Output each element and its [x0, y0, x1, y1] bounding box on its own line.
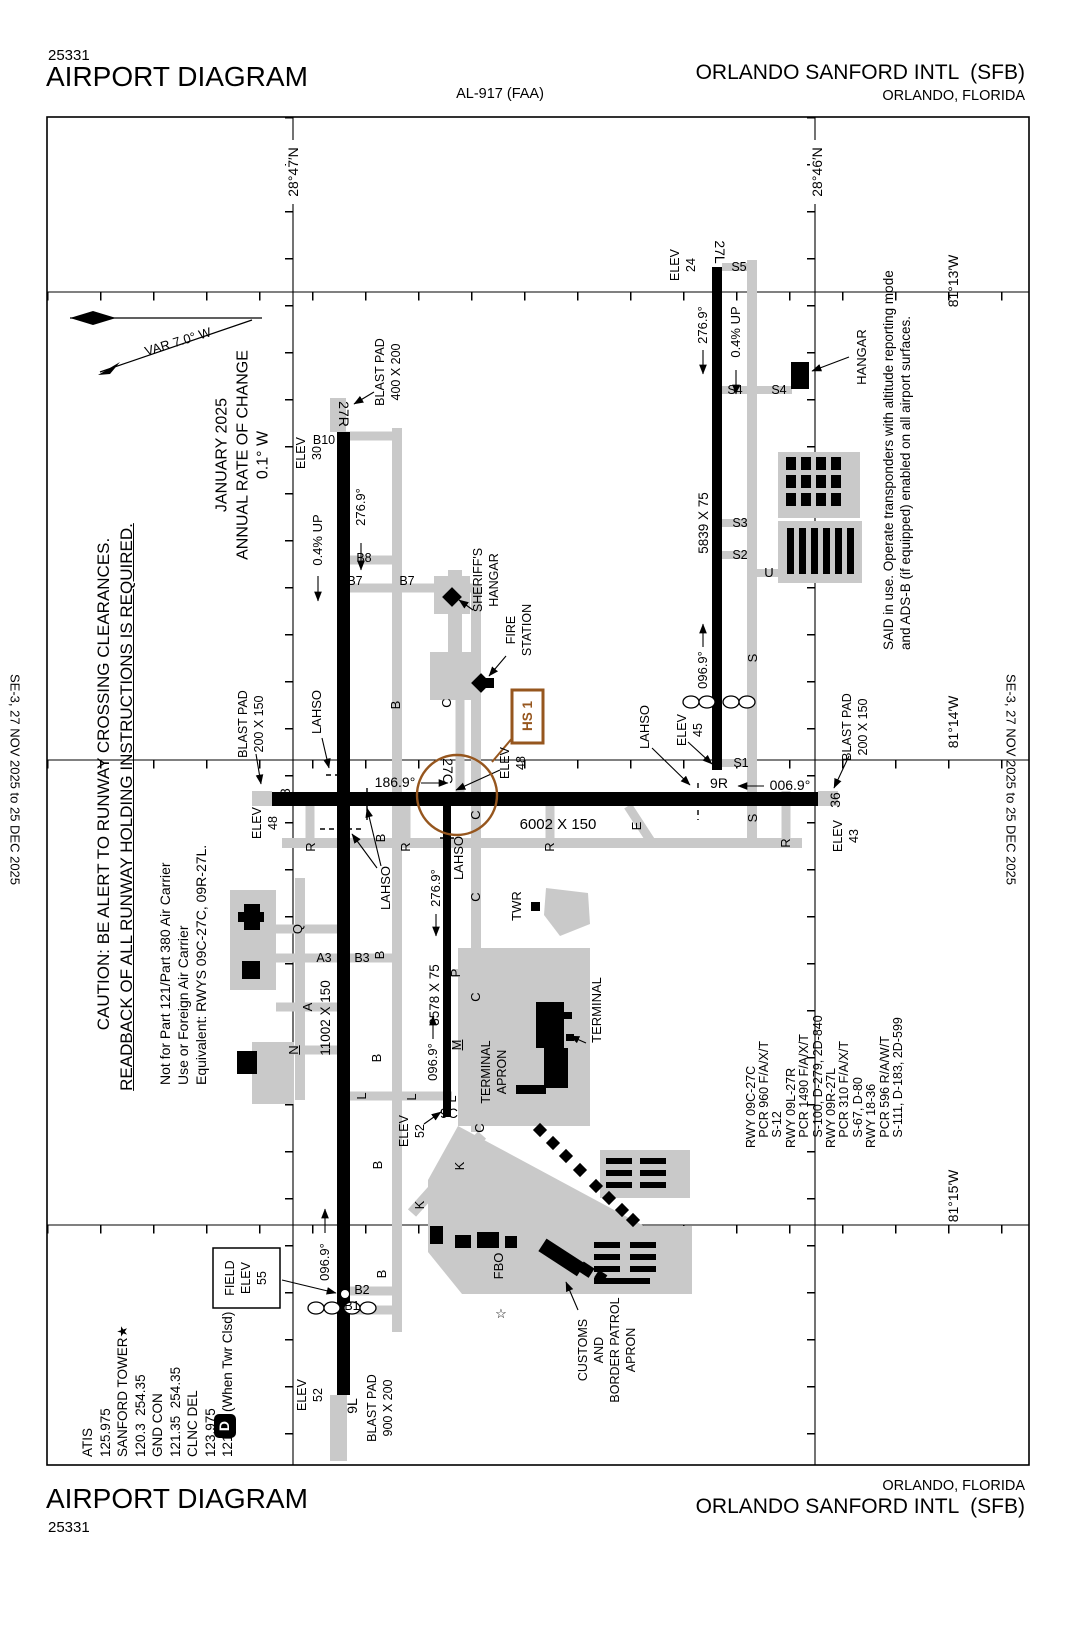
taxiway-c-label-1: C: [439, 695, 455, 711]
dimensions-9r-27l: 5839 X 75: [696, 485, 712, 561]
taxiway-l-label-3: L: [444, 1091, 460, 1107]
tower-building: [531, 902, 540, 911]
taxiway-s4-label-1: S4: [723, 382, 747, 398]
lahso-label-1: LAHSO: [309, 687, 325, 737]
blast-pad-18-label: BLAST PAD 200 X 150: [236, 686, 266, 762]
taxiway-b-label-6: B: [374, 1266, 390, 1282]
runway-end-9c: 9C: [437, 1106, 461, 1122]
runway-data-block: RWY 09C-27C PCR 960 F/A/X/T S-12 RWY 09L…: [744, 988, 906, 1148]
dimensions-18-36: 6002 X 150: [516, 817, 600, 833]
dimensions-9l-27r: 11002 X 150: [318, 972, 334, 1064]
runway-end-27l: 27L: [711, 236, 727, 268]
hdg-9l: 096.9°: [317, 1238, 333, 1286]
runway-end-27c: 27C: [439, 755, 455, 787]
taxiway-b8-label: B8: [350, 550, 378, 566]
terminal-label: TERMINAL: [589, 974, 605, 1046]
taxiway-r-label-3: R: [542, 839, 558, 855]
taxiway-e-label: E: [629, 818, 645, 834]
elev-27l: ELEV 24: [668, 245, 698, 285]
elev-27c: ELEV 48: [498, 743, 528, 783]
runway-end-9r: 9R: [707, 776, 731, 792]
taxiway-r-label-4: R: [778, 835, 794, 851]
runway-end-9l: 9L: [345, 1394, 361, 1418]
page-title-top: AIRPORT DIAGRAM: [46, 62, 406, 92]
runway-18-36: [272, 792, 818, 806]
taxiway-c-label-3: C: [468, 889, 484, 905]
city-bottom: ORLANDO, FLORIDA: [600, 1478, 1025, 1494]
effective-dates-right: SE-3, 27 NOV 2025 to 25 DEC 2025: [1000, 600, 1020, 960]
taxiway-b7-label-1: B7: [341, 573, 369, 589]
longitude-label-81-15: 81°15′W: [946, 1164, 962, 1228]
taxiway-c-label-2: C: [468, 807, 484, 823]
airport-diagram-page: 25331 AIRPORT DIAGRAM AL-917 (FAA) ORLAN…: [0, 0, 1076, 1650]
hot-spot-hs1-label: HS 1: [520, 697, 536, 735]
taxiway-a-label: A: [300, 999, 316, 1015]
taxiway-b-label-2: B: [373, 830, 389, 846]
taxiway-b-label-4: B: [369, 1050, 385, 1066]
airport-name-bottom: ORLANDO SANFORD INTL (SFB): [600, 1496, 1025, 1518]
hangar-building: [791, 362, 809, 389]
fire-station-label: FIRE STATION: [504, 600, 534, 660]
sheriffs-hangar-label: SHERIFF'S HANGAR: [471, 544, 501, 616]
taxiway-b-label-1: B: [388, 697, 404, 713]
elev-9c: ELEV 52: [397, 1111, 427, 1151]
caution-note-line2: READBACK OF ALL RUNWAY HOLDING INSTRUCTI…: [115, 512, 139, 1102]
comm-frequencies-block: ATIS 125.975 SANFORD TOWER★ 120.3 254.35…: [78, 1285, 238, 1457]
fbo-label: FBO: [491, 1250, 507, 1282]
runway-9r-27l: [712, 267, 722, 770]
hdg-9r: 096.9°: [695, 646, 711, 694]
lahso-label-2: LAHSO: [378, 863, 394, 913]
airport-name-top: ORLANDO SANFORD INTL (SFB): [600, 62, 1025, 84]
hangar-label: HANGAR: [854, 326, 870, 388]
elev-36: ELEV 43: [831, 816, 861, 856]
taxiway-s3-label: S3: [728, 515, 752, 531]
lahso-label-3: LAHSO: [451, 833, 467, 883]
effective-dates-left: SE-3, 27 NOV 2025 to 25 DEC 2025: [4, 600, 24, 960]
taxiway-a3-label: A3: [312, 950, 336, 966]
gradient-9l-27r: 0.4% UP: [310, 510, 326, 570]
part121-note: Not for Part 121/Part 380 Air Carrier Us…: [154, 815, 214, 1085]
taxiway-b7-label-2: B7: [393, 573, 421, 589]
hdg-18: 186.9°: [371, 775, 419, 791]
taxiway-s2-label: S2: [728, 547, 752, 563]
rate-of-change-note: JANUARY 2025 ANNUAL RATE OF CHANGE 0.1° …: [216, 338, 272, 573]
latitude-label-28-47: 28°47′N: [286, 140, 302, 204]
taxiway-b-label-5: B: [370, 1157, 386, 1173]
field-elevation-point: [341, 1290, 349, 1298]
said-note: SAID in use. Operate transponders with a…: [877, 150, 917, 650]
taxiway-q-label: Q: [290, 921, 306, 937]
gradient-9r-27l: 0.4% UP: [728, 302, 744, 362]
field-elevation-label: FIELD ELEV 55: [223, 1256, 269, 1300]
elev-9l: ELEV 52: [295, 1375, 325, 1415]
hdg-27r: 276.9°: [353, 483, 369, 531]
caution-note-line1: CAUTION: BE ALERT TO RUNWAY CROSSING CLE…: [92, 489, 116, 1079]
elev-18: ELEV 48: [250, 803, 280, 843]
taxiway-c-label-5: C: [472, 1120, 488, 1136]
taxiway-l-label-2: L: [404, 1089, 420, 1105]
page-title-bottom: AIRPORT DIAGRAM: [46, 1484, 406, 1514]
tower-label: TWR: [509, 889, 525, 923]
taxiway-r-label-2: R: [398, 839, 414, 855]
chart-code-bottom: 25331: [48, 1520, 168, 1536]
taxiway-n-label: N: [286, 1042, 302, 1058]
hdg-36: 006.9°: [766, 778, 814, 794]
taxiway-s1-label: S1: [729, 755, 753, 771]
hdg-27c: 276.9°: [428, 864, 444, 912]
hdg-27l: 276.9°: [695, 301, 711, 349]
longitude-label-81-14: 81°14′W: [946, 690, 962, 754]
taxiway-b-label-3: B: [372, 947, 388, 963]
taxiway-c-label-4: C: [468, 989, 484, 1005]
taxiway-b10-label: B10: [310, 432, 338, 448]
runway-end-18: 18: [278, 785, 294, 807]
beacon-symbol: ☆: [494, 1306, 508, 1322]
taxiway-l-label-1: L: [354, 1088, 370, 1104]
hdg-9c: 096.9°: [425, 1038, 441, 1086]
blast-pad-27r-label: BLAST PAD 400 X 200: [373, 334, 403, 410]
blast-pad-36-label: BLAST PAD 200 X 150: [840, 689, 870, 765]
taxiway-m-label: M: [449, 1037, 465, 1053]
weather-symbol: D: [217, 1418, 233, 1434]
taxiway-s-label-1: S: [745, 650, 761, 666]
taxiway-s-label-2: S: [745, 810, 761, 826]
taxiway-r-label-1: R: [303, 839, 319, 855]
taxiway-u-label: U: [761, 565, 777, 581]
dimensions-9c-27c: 3578 X 75: [427, 957, 443, 1033]
procedure-id: AL-917 (FAA): [420, 86, 580, 102]
lahso-label-4: LAHSO: [637, 702, 653, 752]
taxiway-k-label-1: K: [452, 1158, 468, 1174]
terminal-apron-label: TERMINAL APRON: [479, 1036, 509, 1108]
longitude-label-81-13: 81°13′W: [946, 249, 962, 313]
taxiway-k-label-2: K: [412, 1197, 428, 1213]
taxiway-s4-label-2: S4: [767, 382, 791, 398]
taxiway-b1-label: B1: [340, 1298, 364, 1314]
taxiway-b2-label: B2: [350, 1282, 374, 1298]
taxiway-p-label: P: [448, 965, 464, 981]
runway-end-36: 36: [828, 789, 844, 811]
runway-end-27r: 27R: [335, 398, 351, 430]
latitude-label-28-46: 28°46′N: [810, 140, 826, 204]
blast-pad-9l-label: BLAST PAD 900 X 200: [365, 1370, 395, 1446]
taxiway-s5-label: S5: [727, 259, 751, 275]
elev-9r: ELEV 45: [675, 710, 705, 750]
customs-apron-label: CUSTOMS AND BORDER PATROL APRON: [577, 1295, 637, 1405]
city-top: ORLANDO, FLORIDA: [600, 88, 1025, 104]
taxiway-b3-label: B3: [350, 950, 374, 966]
